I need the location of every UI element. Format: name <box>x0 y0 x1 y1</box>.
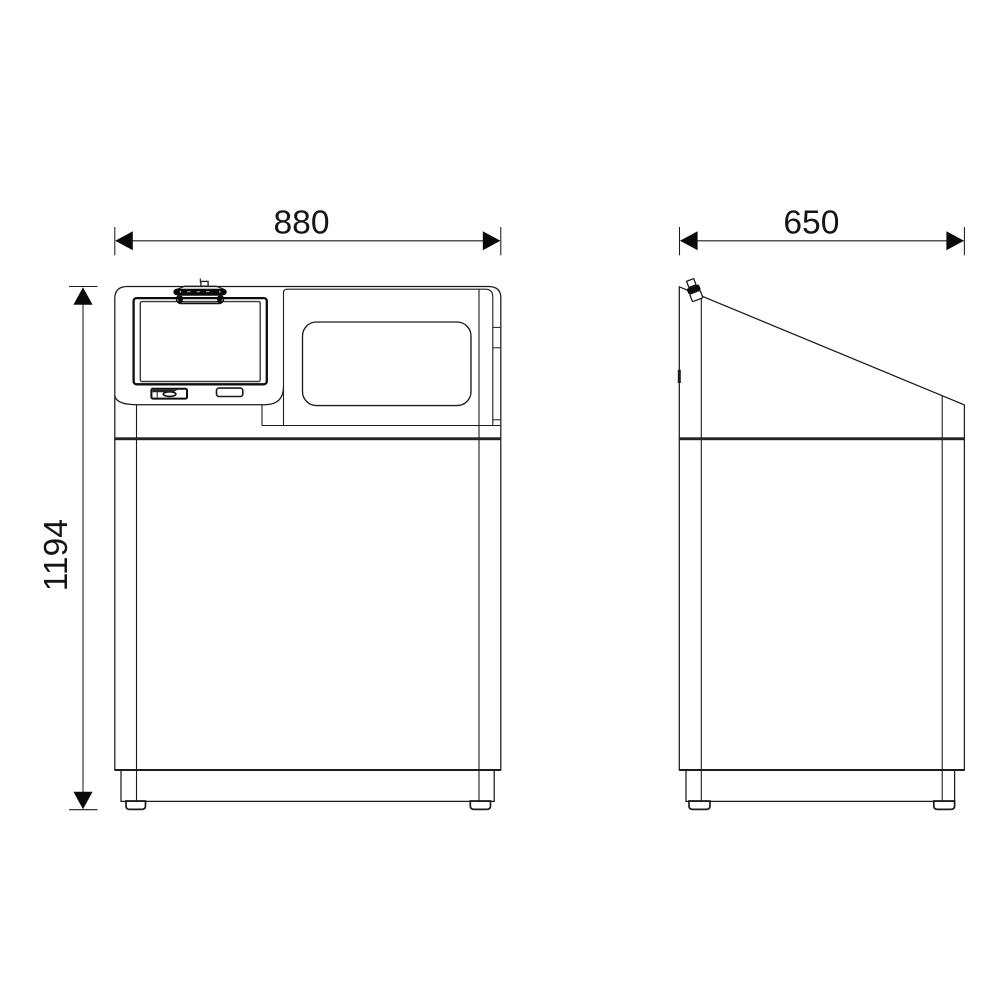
svg-text:650: 650 <box>783 204 839 241</box>
svg-text:1194: 1194 <box>38 519 75 591</box>
svg-text:880: 880 <box>273 204 329 241</box>
